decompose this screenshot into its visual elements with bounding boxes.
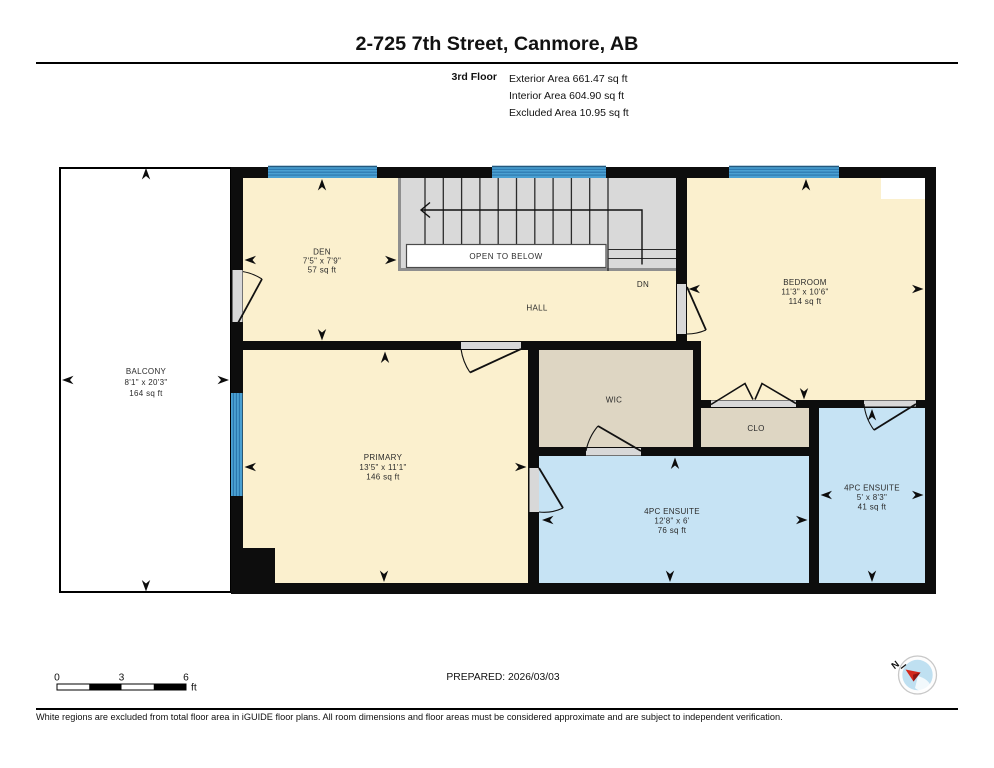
svg-text:CLO: CLO xyxy=(747,424,764,433)
svg-text:PRIMARY: PRIMARY xyxy=(364,453,403,462)
svg-text:BEDROOM: BEDROOM xyxy=(783,278,826,287)
svg-text:7'5" x 7'9": 7'5" x 7'9" xyxy=(303,257,341,266)
svg-text:OPEN TO BELOW: OPEN TO BELOW xyxy=(469,252,542,261)
svg-text:11'3" x 10'6": 11'3" x 10'6" xyxy=(781,288,828,297)
svg-text:8'1" x 20'3": 8'1" x 20'3" xyxy=(124,378,167,387)
svg-text:ft: ft xyxy=(191,683,197,694)
svg-text:WIC: WIC xyxy=(606,396,622,405)
svg-text:DEN: DEN xyxy=(313,248,331,257)
svg-text:4PC ENSUITE: 4PC ENSUITE xyxy=(644,507,700,516)
svg-text:DN: DN xyxy=(637,280,649,289)
svg-text:4PC ENSUITE: 4PC ENSUITE xyxy=(844,484,900,493)
svg-text:5' x 8'3": 5' x 8'3" xyxy=(857,493,887,502)
svg-text:41 sq ft: 41 sq ft xyxy=(858,503,887,512)
svg-text:114 sq ft: 114 sq ft xyxy=(789,297,822,306)
svg-text:BALCONY: BALCONY xyxy=(126,367,167,376)
svg-text:146 sq ft: 146 sq ft xyxy=(366,473,400,482)
svg-text:76 sq ft: 76 sq ft xyxy=(658,526,687,535)
svg-text:164 sq ft: 164 sq ft xyxy=(129,389,163,398)
svg-text:13'5" x 11'1": 13'5" x 11'1" xyxy=(359,463,406,472)
svg-text:HALL: HALL xyxy=(526,304,547,313)
svg-text:57 sq ft: 57 sq ft xyxy=(308,266,337,275)
svg-text:12'8" x 6': 12'8" x 6' xyxy=(654,517,689,526)
